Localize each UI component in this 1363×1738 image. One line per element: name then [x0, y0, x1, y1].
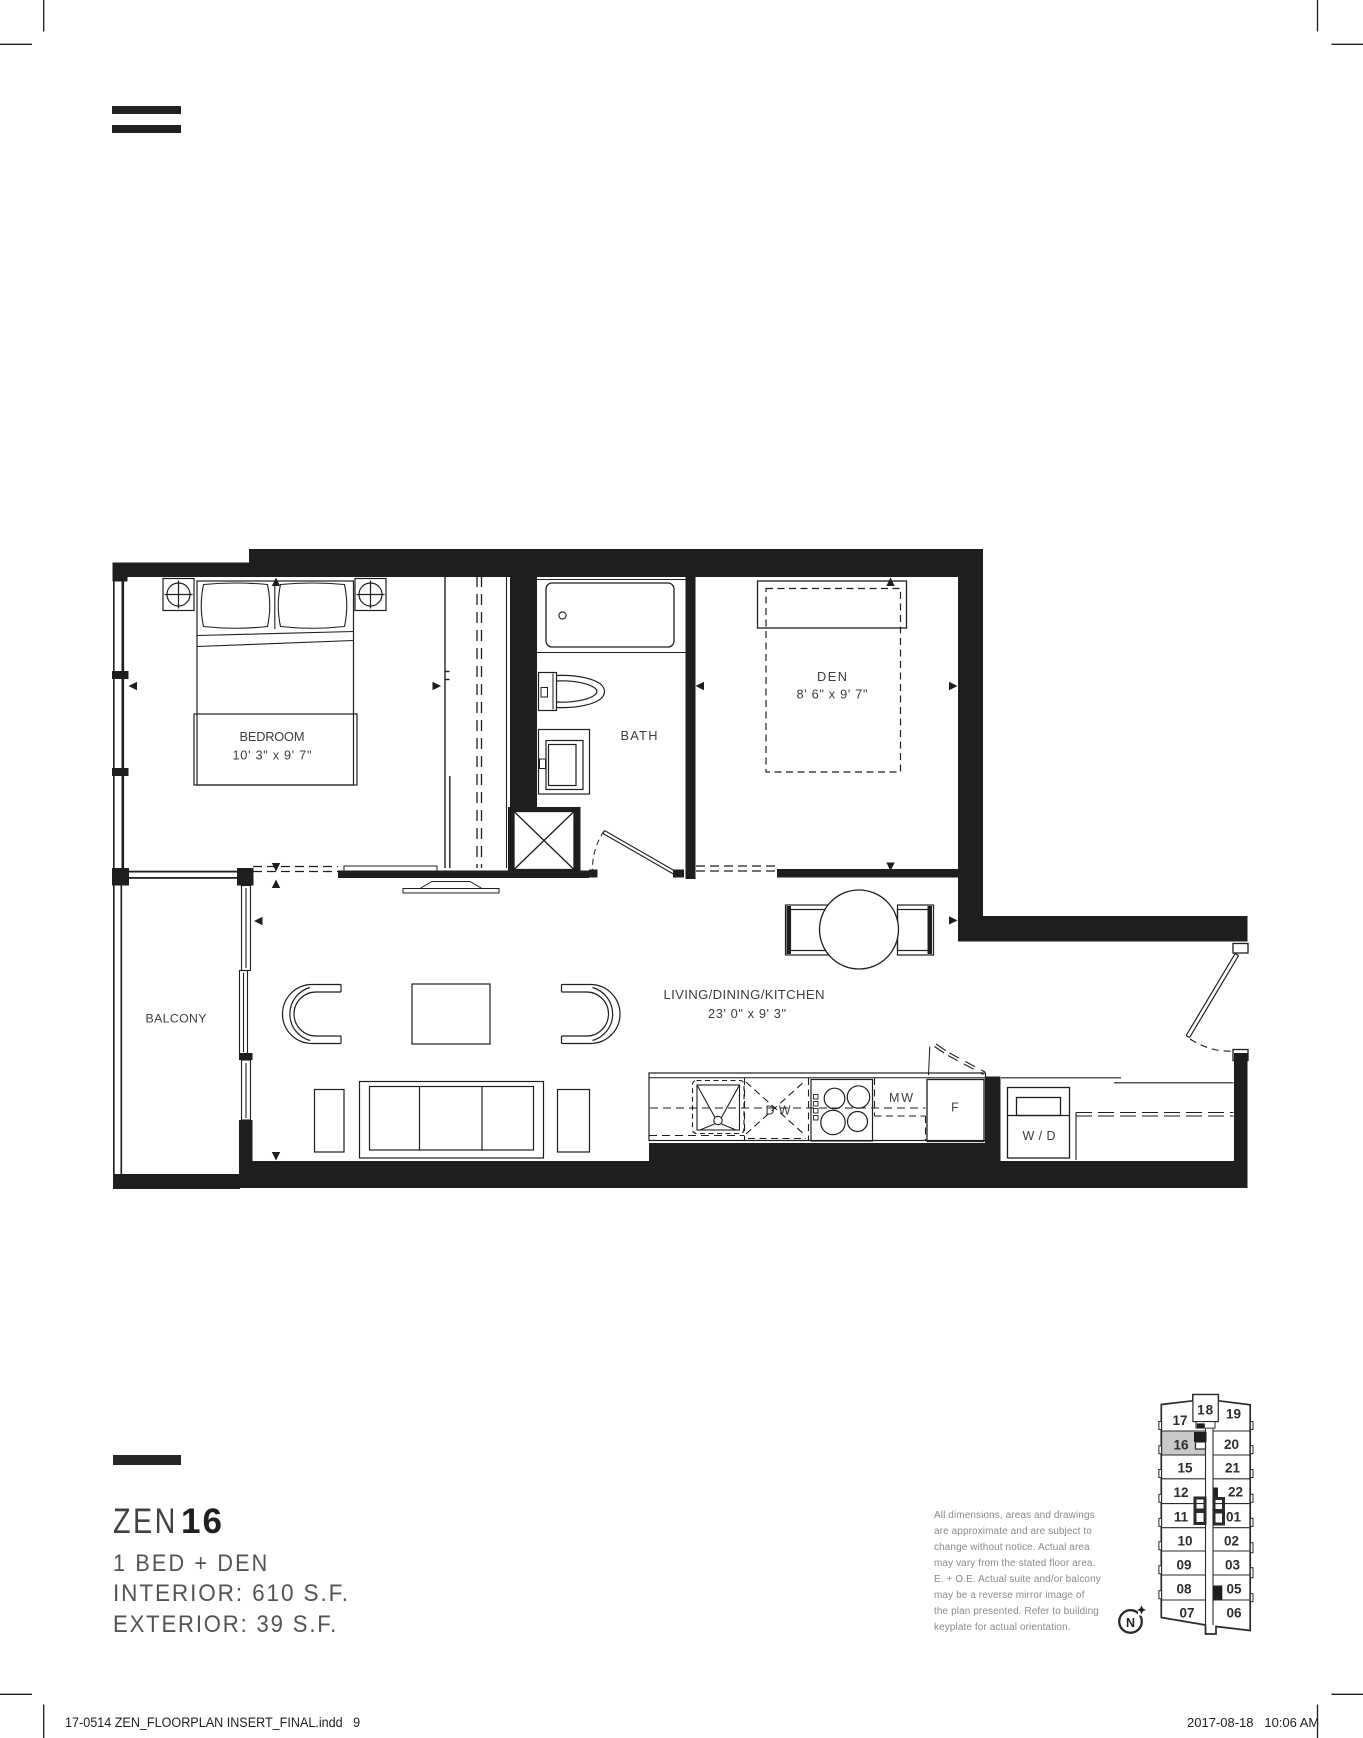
svg-text:BALCONY: BALCONY	[146, 1012, 207, 1026]
svg-text:8' 6" x 9' 7": 8' 6" x 9' 7"	[797, 687, 868, 702]
svg-text:21: 21	[1225, 1461, 1241, 1476]
svg-text:06: 06	[1226, 1606, 1242, 1621]
svg-text:MW: MW	[889, 1091, 913, 1105]
svg-text:22: 22	[1228, 1485, 1243, 1500]
svg-text:23' 0" x 9' 3": 23' 0" x 9' 3"	[708, 1006, 786, 1021]
svg-text:20: 20	[1224, 1437, 1239, 1452]
svg-text:LIVING/DINING/KITCHEN: LIVING/DINING/KITCHEN	[664, 987, 825, 1002]
svg-text:BATH: BATH	[621, 728, 658, 743]
svg-text:02: 02	[1224, 1534, 1239, 1549]
svg-text:07: 07	[1179, 1606, 1194, 1621]
svg-text:05: 05	[1226, 1582, 1242, 1597]
svg-text:N: N	[1126, 1616, 1135, 1630]
svg-text:19: 19	[1226, 1407, 1241, 1422]
svg-text:08: 08	[1176, 1582, 1192, 1597]
svg-text:01: 01	[1226, 1510, 1242, 1525]
svg-text:BEDROOM: BEDROOM	[240, 729, 305, 744]
svg-text:16: 16	[1173, 1438, 1189, 1453]
svg-text:12: 12	[1173, 1485, 1188, 1500]
svg-text:F: F	[951, 1101, 959, 1115]
svg-text:03: 03	[1225, 1558, 1241, 1573]
svg-text:17: 17	[1172, 1413, 1187, 1428]
svg-text:W/D: W/D	[1023, 1129, 1056, 1143]
svg-text:18: 18	[1197, 1403, 1214, 1418]
svg-text:DW: DW	[766, 1104, 791, 1118]
svg-text:10' 3" x 9' 7": 10' 3" x 9' 7"	[233, 748, 312, 763]
svg-text:15: 15	[1177, 1461, 1193, 1476]
svg-text:10: 10	[1177, 1534, 1192, 1549]
svg-text:DEN: DEN	[817, 669, 847, 684]
svg-text:11: 11	[1174, 1510, 1189, 1525]
svg-text:09: 09	[1176, 1558, 1191, 1573]
